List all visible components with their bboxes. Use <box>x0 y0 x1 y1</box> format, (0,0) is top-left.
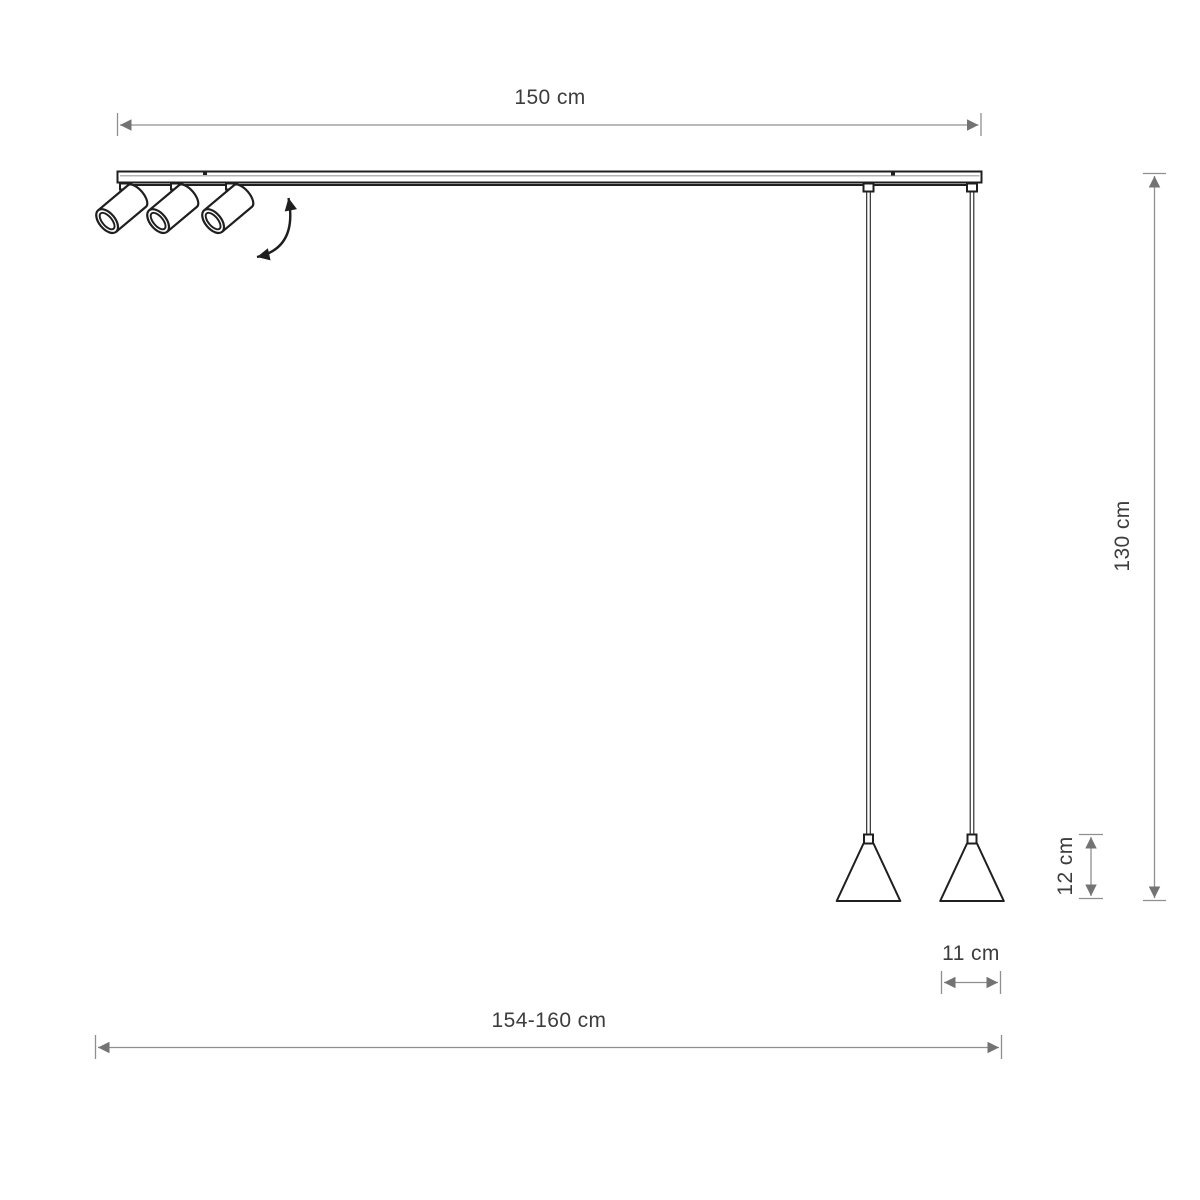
cord-connector-top <box>967 184 977 192</box>
track-bar <box>118 172 982 186</box>
spotlight-1 <box>92 181 151 237</box>
spotlight-3 <box>198 181 257 237</box>
dimension-overall-length: 154-160 cm <box>96 1009 1002 1059</box>
track-body <box>118 172 982 183</box>
spotlight-cylinder <box>198 181 257 237</box>
rotation-arrow-icon <box>257 198 290 257</box>
overall-length-label: 154-160 cm <box>492 1009 607 1032</box>
dimension-pendant-drop: 130 cm <box>1111 174 1166 901</box>
diagram-svg: 150 cm <box>0 0 1200 1200</box>
spotlight-cylinder <box>92 181 151 237</box>
pendant-1 <box>837 184 901 902</box>
dimension-track-length: 150 cm <box>118 86 982 136</box>
dimension-diagram: 150 cm <box>0 0 1200 1200</box>
cone-shade <box>940 844 1004 902</box>
cone-shade <box>837 844 901 902</box>
shade-diameter-label: 11 cm <box>942 942 1000 965</box>
track-screw-mark-right <box>891 173 895 176</box>
pendant-drop-label: 130 cm <box>1111 500 1134 571</box>
track-screw-mark-left <box>203 172 207 175</box>
spotlight-2 <box>143 181 202 237</box>
track-length-label: 150 cm <box>514 86 585 109</box>
shade-height-label: 12 cm <box>1054 836 1077 895</box>
cord-connector-top <box>864 184 874 192</box>
shade-connector <box>864 835 873 844</box>
spotlight-cylinder <box>143 181 202 237</box>
shade-connector <box>968 835 977 844</box>
dimension-shade-diameter: 11 cm <box>942 942 1001 994</box>
pendant-2 <box>940 184 1004 902</box>
dimension-shade-height: 12 cm <box>1054 835 1103 899</box>
